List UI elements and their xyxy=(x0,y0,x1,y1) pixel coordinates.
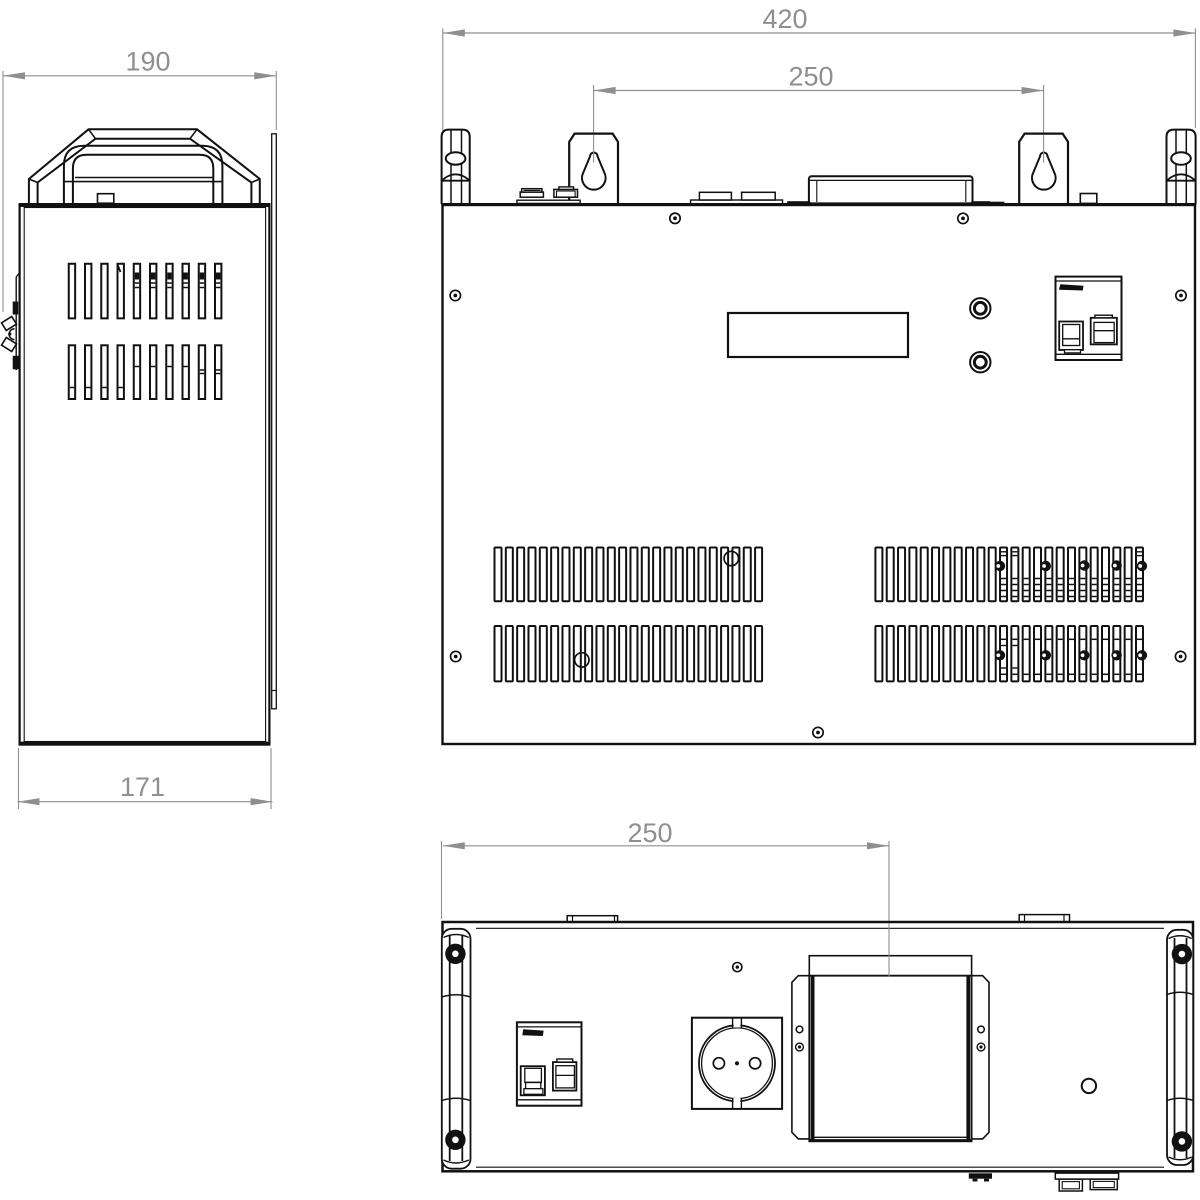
svg-text:171: 171 xyxy=(120,772,165,802)
svg-text:190: 190 xyxy=(125,47,170,77)
svg-text:250: 250 xyxy=(627,818,672,848)
svg-text:250: 250 xyxy=(788,62,833,92)
svg-text:420: 420 xyxy=(762,4,807,34)
